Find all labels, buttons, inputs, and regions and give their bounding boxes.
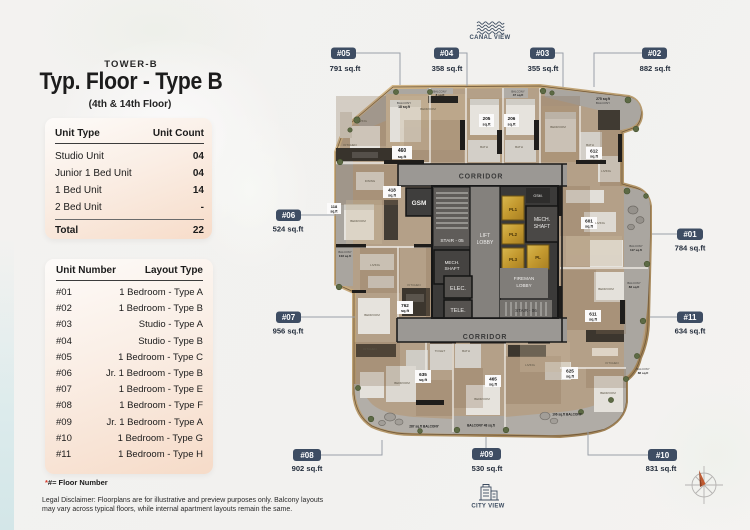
svg-text:TOILET: TOILET xyxy=(435,349,446,353)
svg-text:PL: PL xyxy=(535,255,541,260)
svg-text:BALCONY 48 sq.ft: BALCONY 48 sq.ft xyxy=(467,424,496,428)
svg-text:GSM: GSM xyxy=(412,200,427,207)
svg-text:#04: #04 xyxy=(440,49,454,58)
svg-text:#01: #01 xyxy=(683,230,697,239)
svg-text:LIVING: LIVING xyxy=(525,363,536,367)
svg-text:STAIR - 06: STAIR - 06 xyxy=(515,308,537,313)
svg-text:LOBBY: LOBBY xyxy=(477,240,494,246)
svg-text:LIVING: LIVING xyxy=(370,263,381,267)
svg-text:BATH: BATH xyxy=(515,145,523,149)
svg-text:sq.ft: sq.ft xyxy=(507,123,516,127)
svg-text:sq.ft: sq.ft xyxy=(388,194,397,198)
svg-text:524 sq.ft: 524 sq.ft xyxy=(273,225,304,234)
svg-text:GSM.: GSM. xyxy=(533,194,542,198)
svg-text:sq.ft: sq.ft xyxy=(401,309,410,313)
svg-text:BATH: BATH xyxy=(462,349,470,353)
svg-text:KITCHEN: KITCHEN xyxy=(605,361,618,365)
svg-text:KITCHEN: KITCHEN xyxy=(343,143,356,147)
svg-text:8 sq.ft: 8 sq.ft xyxy=(436,93,445,97)
svg-text:KITCHEN: KITCHEN xyxy=(363,347,376,351)
svg-text:BATH: BATH xyxy=(480,145,488,149)
svg-text:LIFT: LIFT xyxy=(480,233,490,239)
svg-text:956 sq.ft: 956 sq.ft xyxy=(273,327,304,336)
svg-text:LOBBY: LOBBY xyxy=(516,283,531,288)
svg-text:BEDROOM: BEDROOM xyxy=(598,287,614,291)
svg-text:625: 625 xyxy=(566,369,574,374)
svg-text:106 sq.ft BALCONY: 106 sq.ft BALCONY xyxy=(552,413,582,417)
svg-text:BEDROOM: BEDROOM xyxy=(550,125,566,129)
svg-text:418: 418 xyxy=(388,188,396,193)
svg-text:358 sq.ft: 358 sq.ft xyxy=(432,64,463,73)
svg-text:MECH.: MECH. xyxy=(534,217,550,223)
svg-text:BEDROOM: BEDROOM xyxy=(364,313,380,317)
svg-text:#06: #06 xyxy=(282,211,296,220)
svg-text:BEDROOM: BEDROOM xyxy=(474,397,490,401)
svg-text:TELE.: TELE. xyxy=(450,308,466,314)
svg-text:784 sq.ft: 784 sq.ft xyxy=(675,244,706,253)
svg-text:88 sq.ft: 88 sq.ft xyxy=(638,371,649,375)
svg-text:#07: #07 xyxy=(282,313,296,322)
svg-text:530 sq.ft: 530 sq.ft xyxy=(472,464,503,473)
svg-text:PL3: PL3 xyxy=(509,257,518,262)
svg-text:287 sq.ft BALCONY: 287 sq.ft BALCONY xyxy=(409,425,439,429)
svg-text:355 sq.ft: 355 sq.ft xyxy=(528,64,559,73)
svg-text:#10: #10 xyxy=(656,451,670,460)
svg-text:18 sq.ft: 18 sq.ft xyxy=(398,105,411,109)
svg-text:611: 611 xyxy=(589,312,597,317)
svg-text:sq.ft: sq.ft xyxy=(489,383,498,387)
svg-text:635: 635 xyxy=(419,372,427,377)
svg-text:612: 612 xyxy=(590,149,598,154)
svg-text:PL2: PL2 xyxy=(509,232,518,237)
svg-text:CORRIDOR: CORRIDOR xyxy=(463,334,508,341)
svg-text:762: 762 xyxy=(401,303,409,308)
svg-text:#11: #11 xyxy=(684,313,697,322)
svg-text:882 sq.ft: 882 sq.ft xyxy=(640,64,671,73)
svg-text:465: 465 xyxy=(489,377,497,382)
svg-text:SHAFT: SHAFT xyxy=(444,266,459,271)
svg-text:SHAFT: SHAFT xyxy=(534,224,550,230)
svg-text:sq.ft: sq.ft xyxy=(589,318,598,322)
svg-text:#02: #02 xyxy=(648,49,662,58)
svg-text:sq.ft: sq.ft xyxy=(419,378,428,382)
svg-text:BEDROOM: BEDROOM xyxy=(420,107,436,111)
svg-text:BATH: BATH xyxy=(586,143,594,147)
svg-text:205: 205 xyxy=(483,116,491,121)
svg-text:103 sq.ft: 103 sq.ft xyxy=(339,254,351,258)
svg-text:791 sq.ft: 791 sq.ft xyxy=(330,64,361,73)
svg-text:LIVING: LIVING xyxy=(595,221,606,225)
svg-text:83 sq.ft: 83 sq.ft xyxy=(629,285,640,289)
svg-text:sq.ft: sq.ft xyxy=(398,154,407,159)
svg-text:KITCHEN: KITCHEN xyxy=(407,283,420,287)
svg-text:BEDROOM: BEDROOM xyxy=(350,219,366,223)
svg-text:#08: #08 xyxy=(300,451,314,460)
svg-text:831 sq.ft: 831 sq.ft xyxy=(646,464,677,473)
svg-text:206: 206 xyxy=(508,116,516,121)
svg-text:sq.ft: sq.ft xyxy=(590,155,599,159)
svg-text:MECH.: MECH. xyxy=(445,260,460,265)
svg-text:sq.ft: sq.ft xyxy=(482,123,491,127)
svg-text:ELEC.: ELEC. xyxy=(450,286,466,292)
svg-text:117 sq.ft: 117 sq.ft xyxy=(630,248,642,252)
svg-text:902 sq.ft: 902 sq.ft xyxy=(292,464,323,473)
svg-text:LIVING: LIVING xyxy=(357,119,368,123)
svg-text:#03: #03 xyxy=(536,49,550,58)
svg-text:STAIR - 05: STAIR - 05 xyxy=(440,238,464,244)
svg-text:#05: #05 xyxy=(337,49,351,58)
svg-text:118: 118 xyxy=(331,204,338,209)
svg-text:BEDROOM: BEDROOM xyxy=(394,381,410,385)
svg-text:LIVING: LIVING xyxy=(601,169,612,173)
svg-text:#09: #09 xyxy=(480,450,494,459)
svg-text:sq.ft: sq.ft xyxy=(566,375,575,379)
svg-text:sq.ft: sq.ft xyxy=(330,210,338,214)
svg-text:DINING: DINING xyxy=(365,179,376,183)
svg-text:47 sq.ft: 47 sq.ft xyxy=(513,93,524,97)
svg-text:BEDROOM: BEDROOM xyxy=(600,391,616,395)
svg-text:CANAL VIEW: CANAL VIEW xyxy=(470,35,511,41)
svg-text:BALCONY: BALCONY xyxy=(596,101,610,105)
svg-text:PL1: PL1 xyxy=(509,207,518,212)
svg-text:CORRIDOR: CORRIDOR xyxy=(459,174,504,181)
svg-text:601: 601 xyxy=(585,219,593,224)
svg-text:sq.ft: sq.ft xyxy=(585,225,594,229)
svg-text:FIREMAN: FIREMAN xyxy=(514,276,535,281)
svg-text:CITY VIEW: CITY VIEW xyxy=(471,504,504,510)
svg-text:634 sq.ft: 634 sq.ft xyxy=(675,327,706,336)
